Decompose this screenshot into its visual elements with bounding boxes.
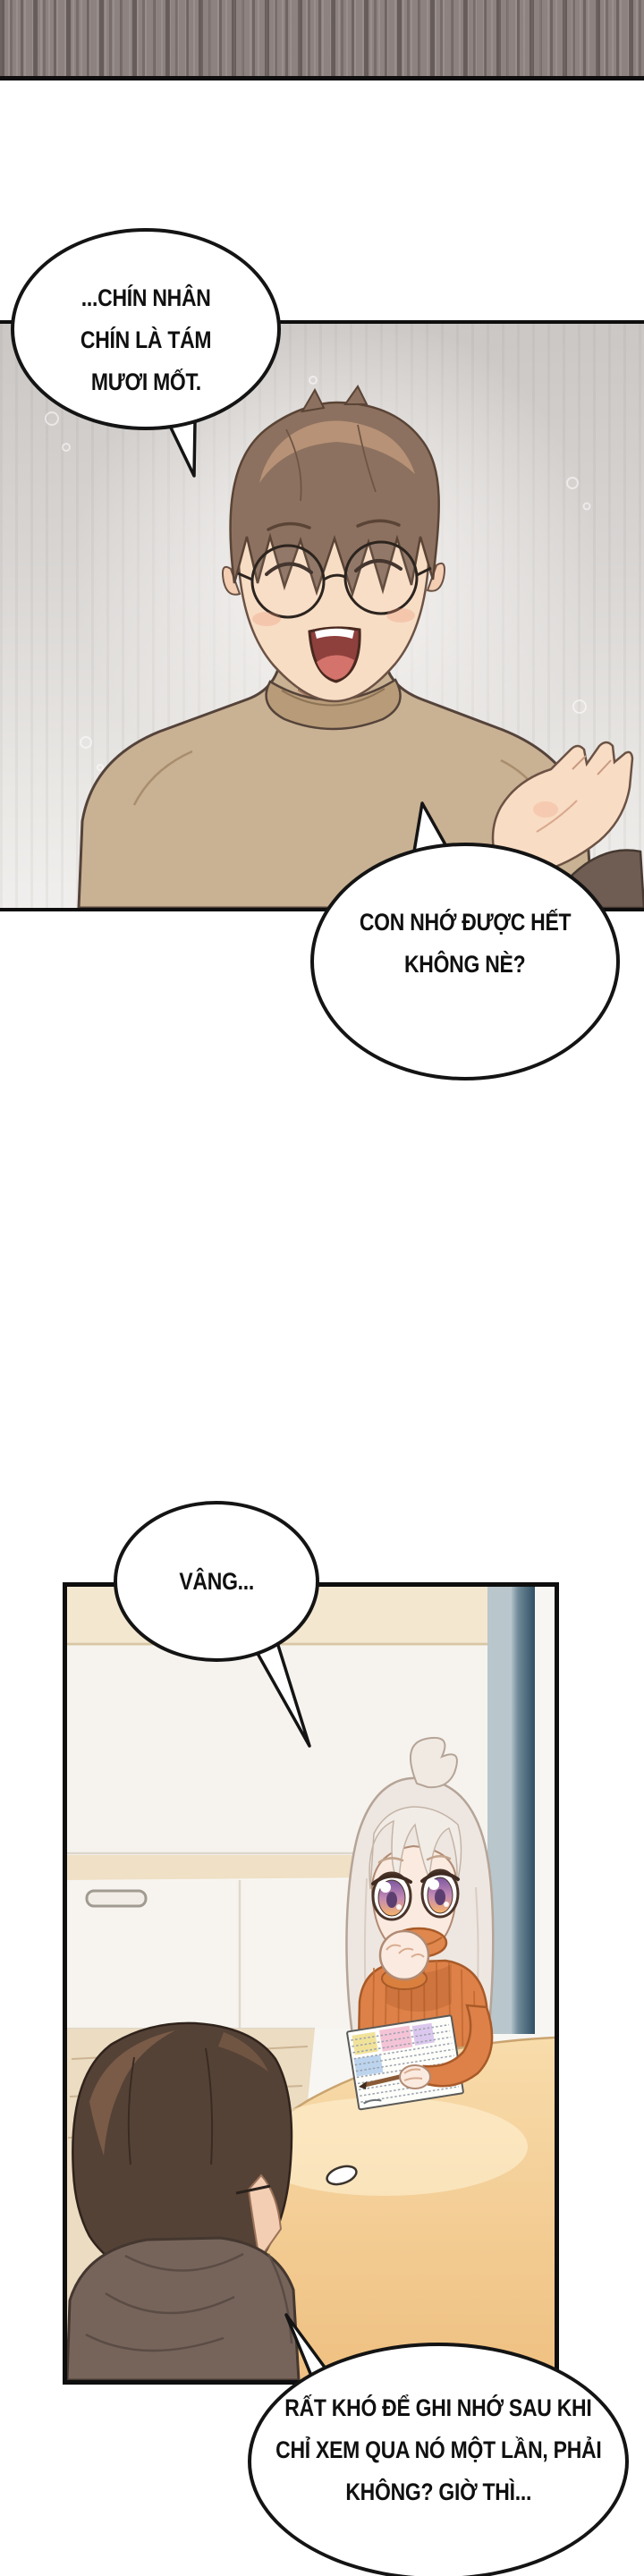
speech-bubble-girl: VÂNG...: [114, 1501, 319, 1662]
cabinet-handle: [87, 1891, 146, 1906]
ceiling-strip: [0, 0, 644, 80]
speech-bubble-dad-2: CON NHỚ ĐƯỢC HẾT KHÔNG NÈ?: [310, 843, 620, 1080]
bubble-text-line: VÂNG...: [179, 1561, 254, 1603]
webtoon-page: ...CHÍN NHÂN CHÍN LÀ TÁM MƯƠI MỐT. CON N…: [0, 0, 644, 2576]
table-scene: [67, 1587, 555, 2380]
bubble-text-line: KHÔNG NÈ?: [404, 944, 525, 986]
bubble-text-line: RẤT KHÓ ĐỂ GHI NHỚ SAU KHI: [284, 2387, 591, 2429]
panel-study-table: [63, 1582, 559, 2385]
bubble-text-line: ...CHÍN NHÂN: [81, 277, 211, 319]
bubble-text-line: CHỈ XEM QUA NÓ MỘT LẦN, PHẢI: [275, 2429, 601, 2471]
bubble-text-line: MƯƠI MỐT.: [90, 361, 200, 403]
speech-bubble-dad-3: RẤT KHÓ ĐỂ GHI NHỚ SAU KHI CHỈ XEM QUA N…: [248, 2343, 629, 2576]
bubble-text-line: KHÔNG? GIỜ THÌ...: [345, 2471, 531, 2513]
dad-figure: [79, 386, 644, 908]
bubble-text-line: CON NHỚ ĐƯỢC HẾT: [360, 902, 571, 944]
speech-bubble-dad-1: ...CHÍN NHÂN CHÍN LÀ TÁM MƯƠI MỐT.: [11, 228, 281, 430]
bubble-text-line: CHÍN LÀ TÁM: [80, 319, 211, 361]
